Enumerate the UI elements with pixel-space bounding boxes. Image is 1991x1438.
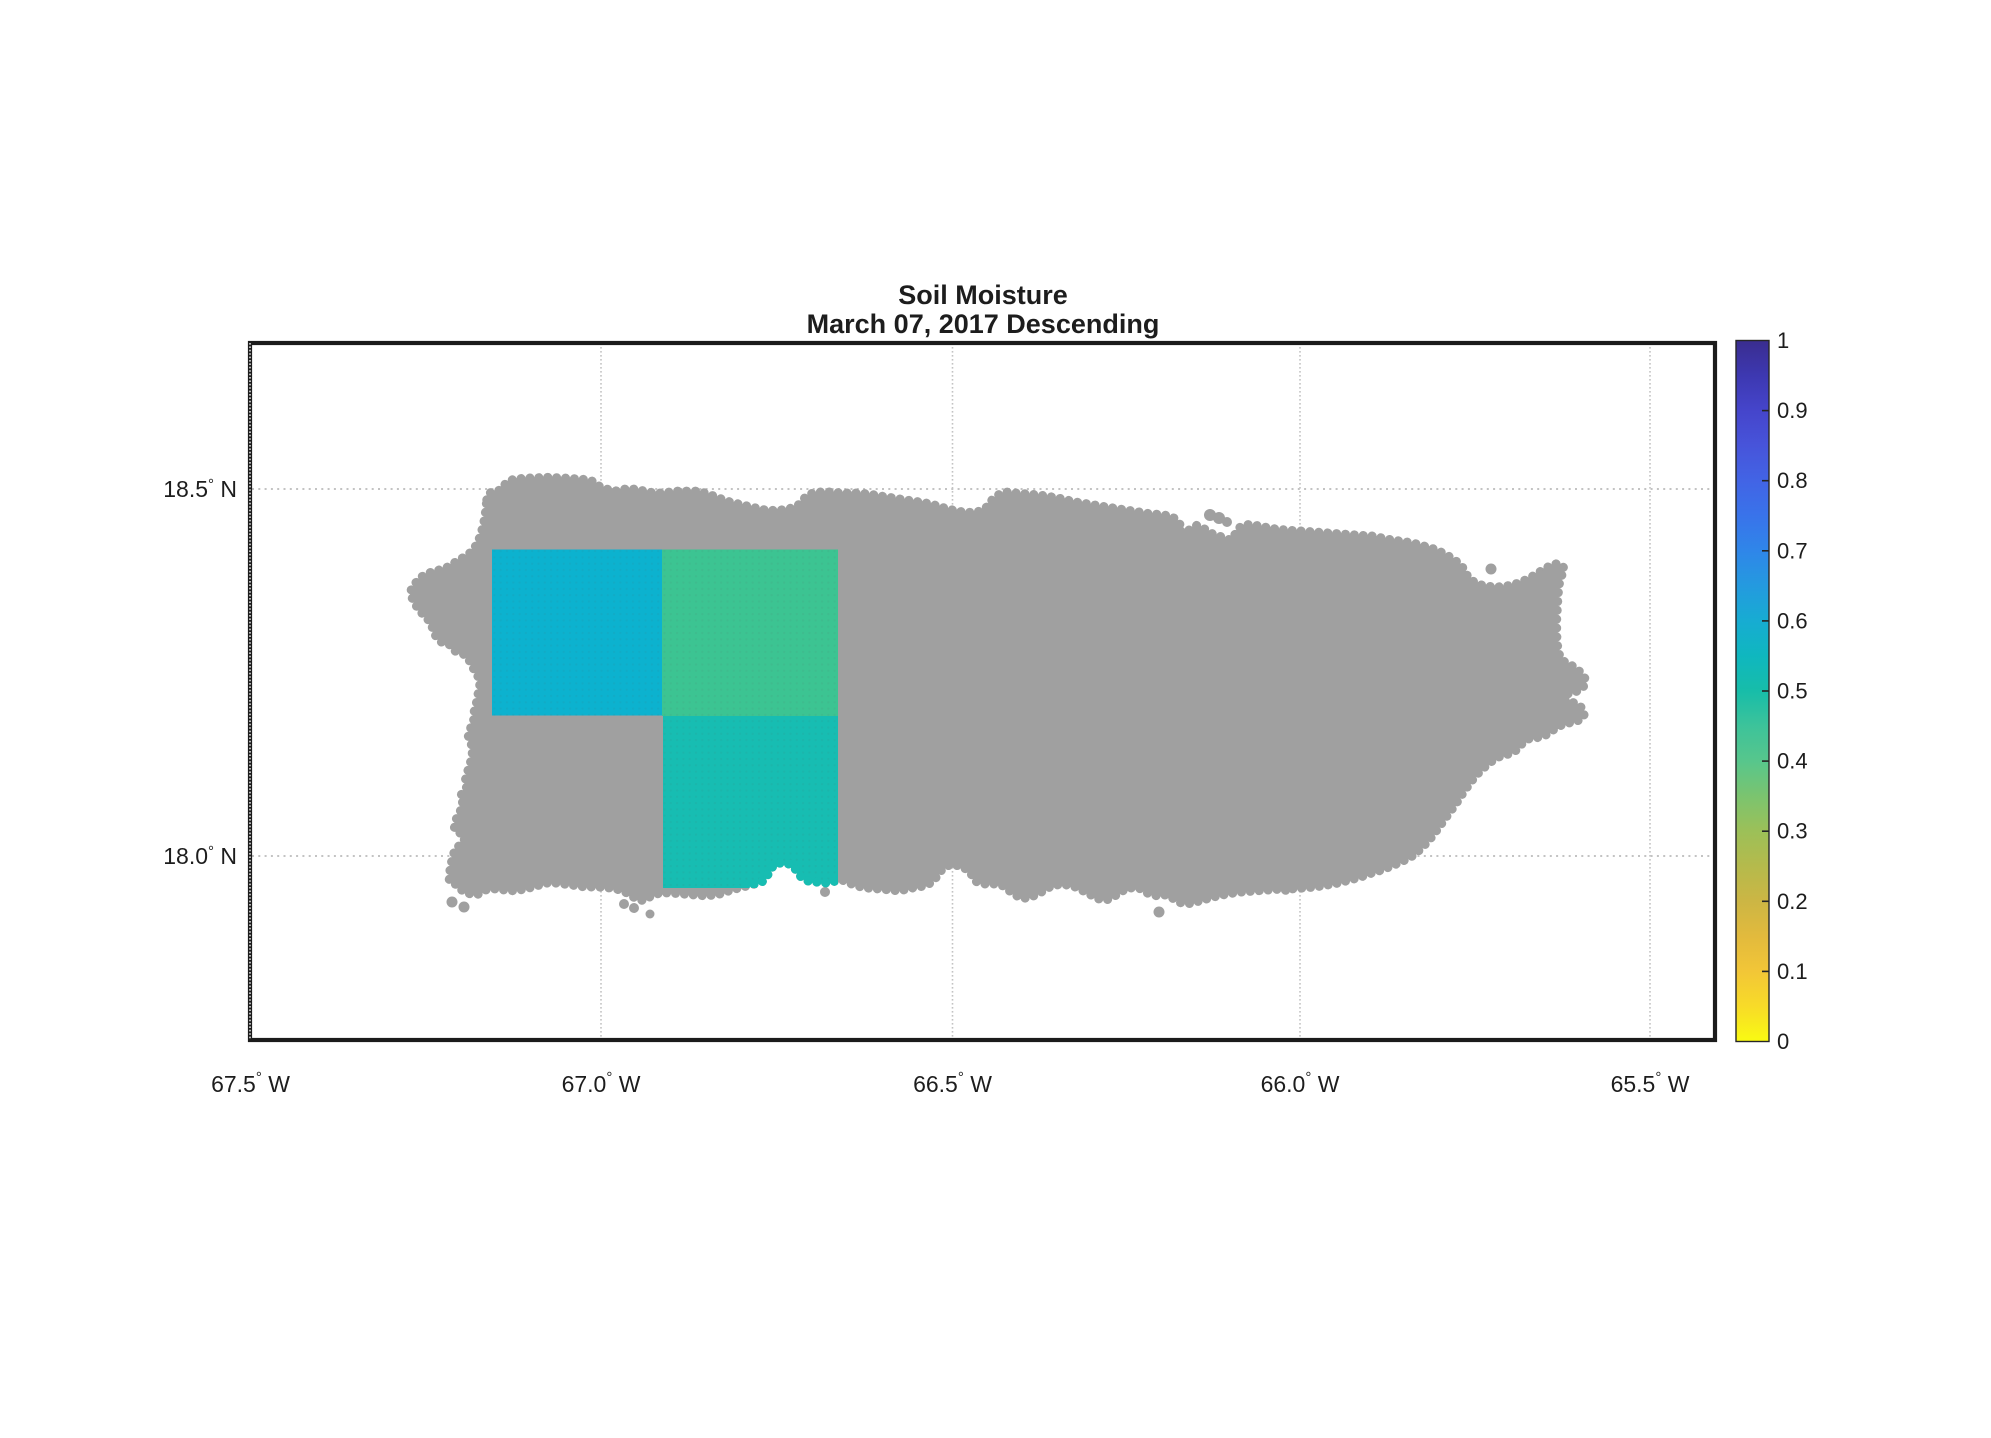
svg-text:March 07, 2017 Descending: March 07, 2017 Descending — [807, 309, 1160, 339]
svg-text:0.1: 0.1 — [1777, 959, 1808, 984]
svg-text:65.5° W: 65.5° W — [1611, 1069, 1690, 1097]
svg-text:0.3: 0.3 — [1777, 819, 1808, 844]
svg-text:66.5° W: 66.5° W — [913, 1069, 992, 1097]
svg-text:Soil Moisture: Soil Moisture — [898, 280, 1068, 310]
svg-text:0.6: 0.6 — [1777, 608, 1808, 633]
svg-text:67.5° W: 67.5° W — [211, 1069, 290, 1097]
svg-text:0: 0 — [1777, 1029, 1789, 1054]
svg-text:18.5° N: 18.5° N — [163, 476, 237, 502]
svg-text:1: 1 — [1777, 328, 1789, 353]
svg-text:67.0° W: 67.0° W — [562, 1069, 641, 1097]
svg-text:0.4: 0.4 — [1777, 749, 1808, 774]
svg-text:0.2: 0.2 — [1777, 889, 1808, 914]
svg-text:66.0° W: 66.0° W — [1261, 1069, 1340, 1097]
svg-text:0.9: 0.9 — [1777, 398, 1808, 423]
svg-text:0.7: 0.7 — [1777, 538, 1808, 563]
svg-text:0.5: 0.5 — [1777, 679, 1808, 704]
svg-text:0.8: 0.8 — [1777, 468, 1808, 493]
svg-text:18.0° N: 18.0° N — [163, 843, 237, 869]
